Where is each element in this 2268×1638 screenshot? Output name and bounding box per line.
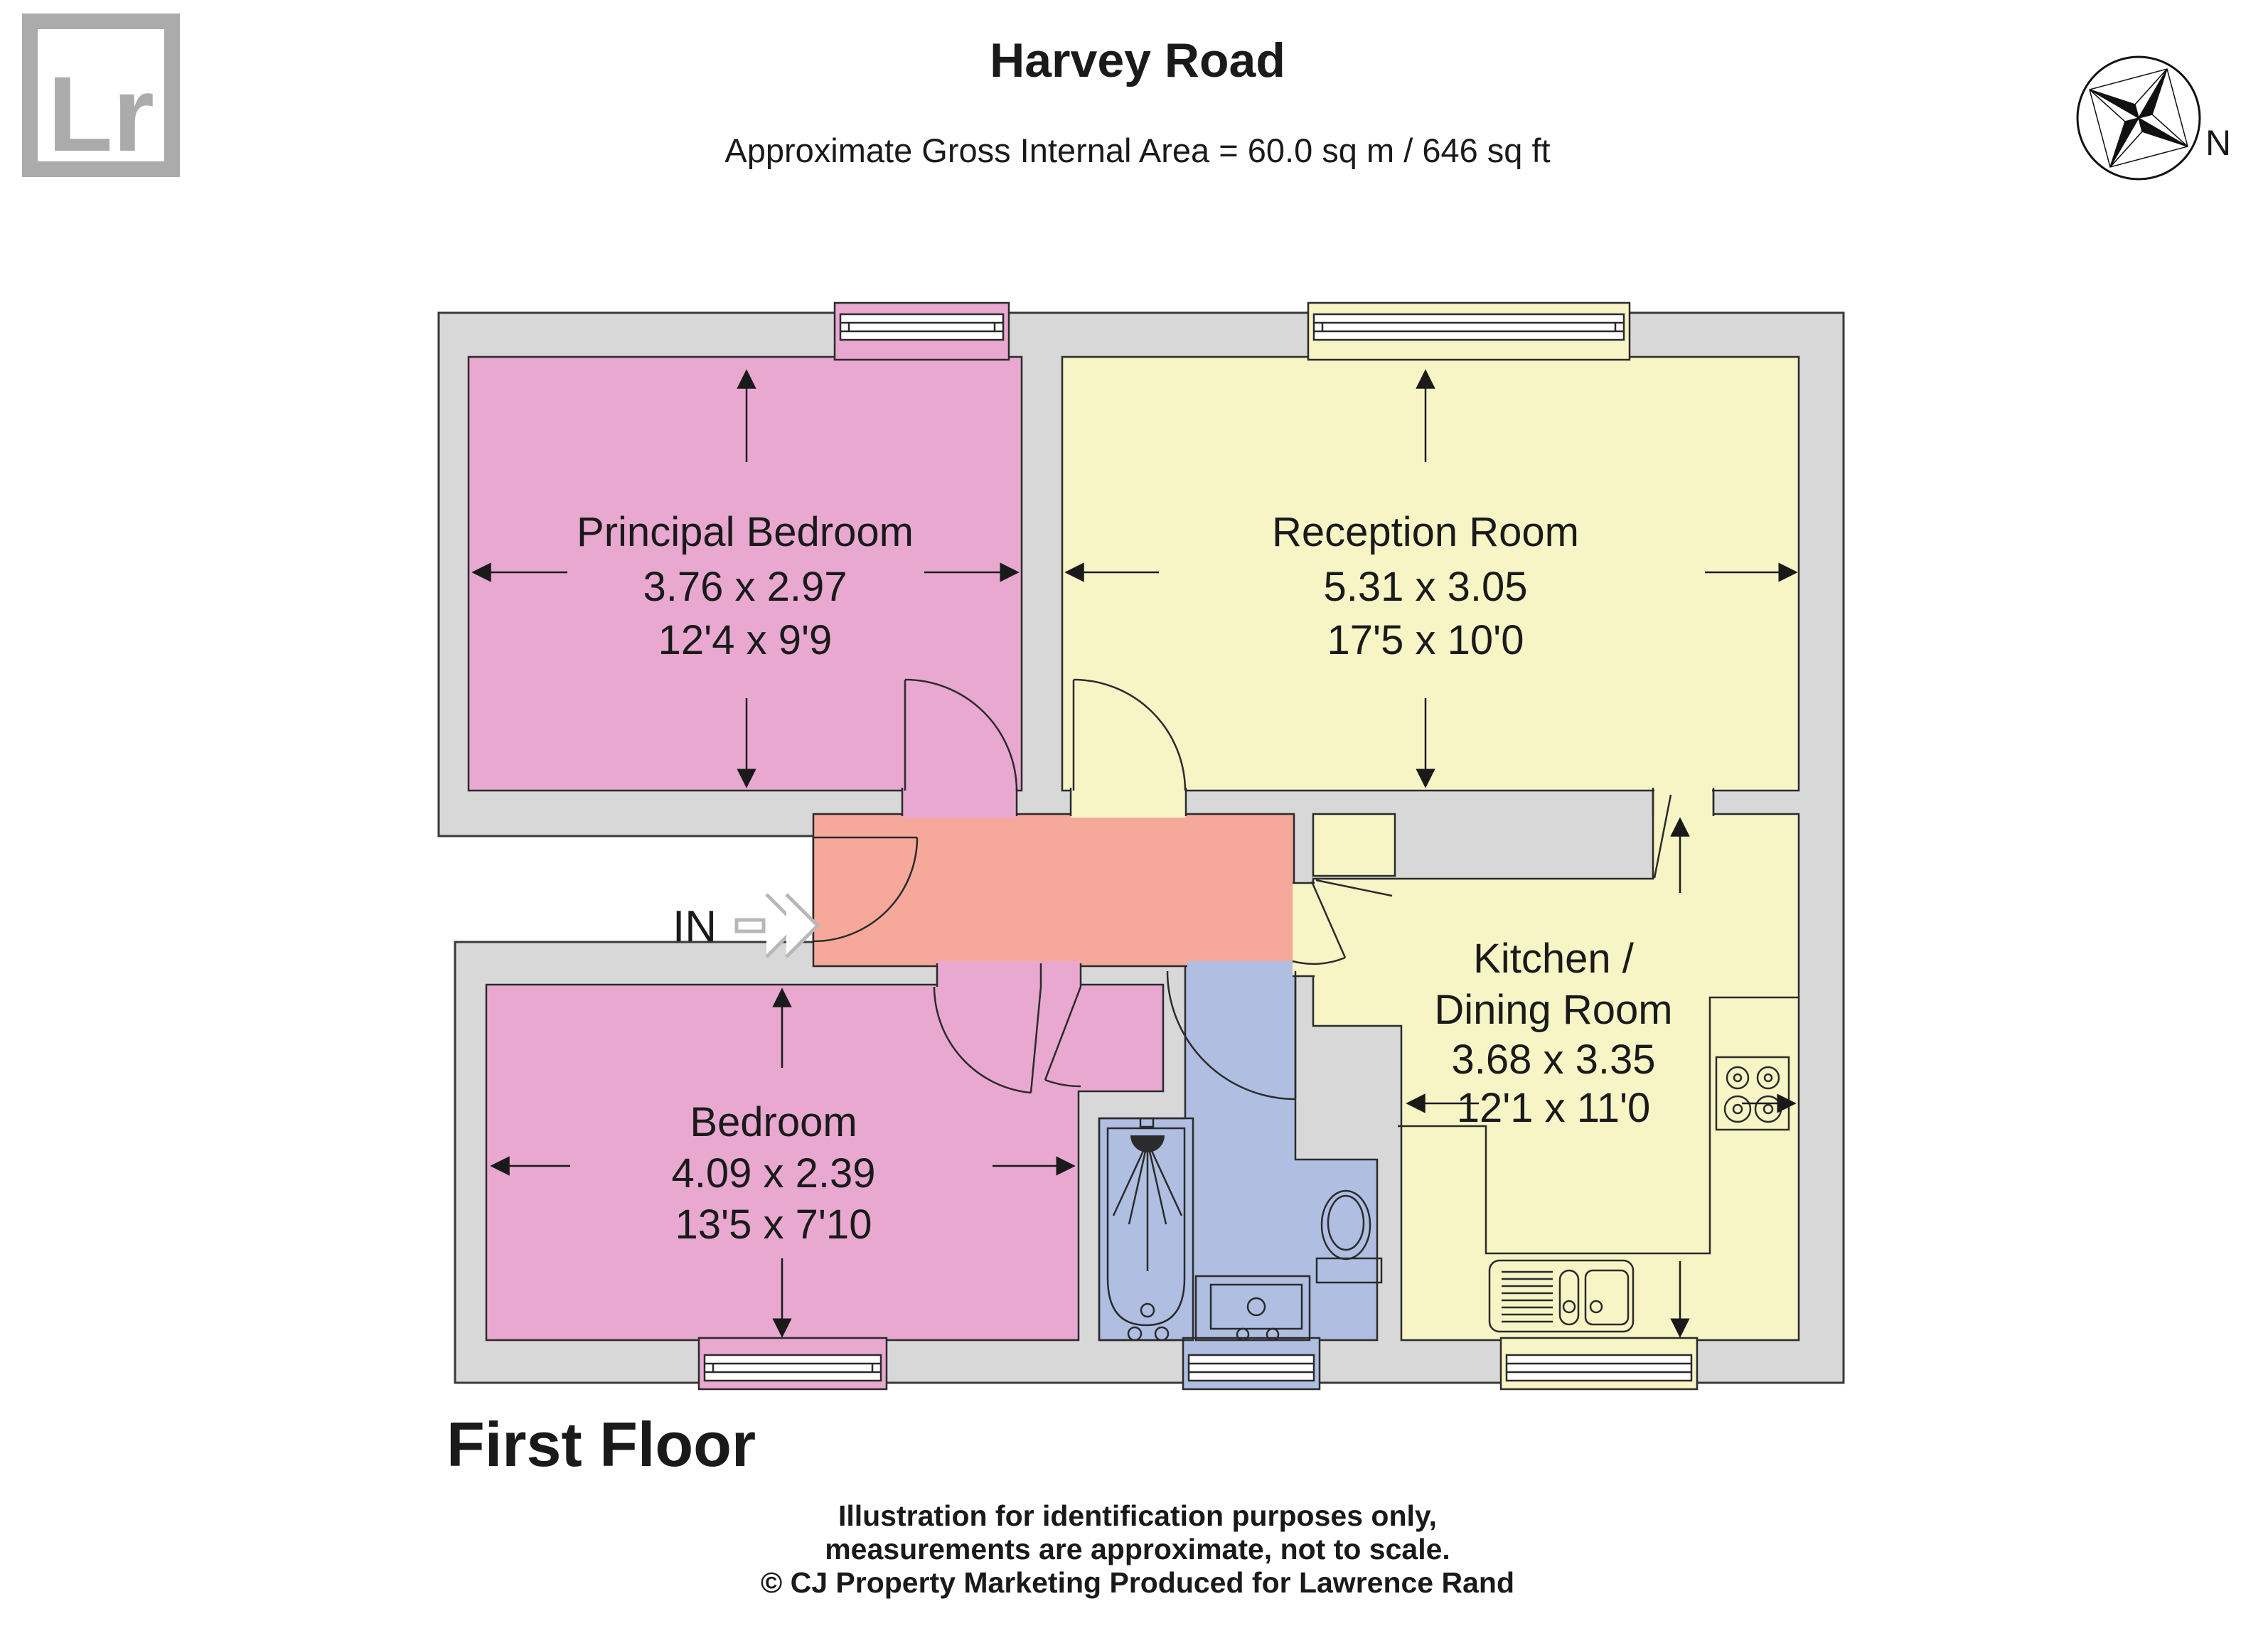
kitchen-cupboard	[1313, 814, 1395, 876]
window-kitchen	[1501, 1338, 1697, 1389]
window-reception	[1308, 303, 1630, 360]
disclaimer-line-2: measurements are approximate, not to sca…	[825, 1533, 1450, 1565]
label-principal-bedroom-name: Principal Bedroom	[577, 509, 914, 555]
label-kitchen-name-1: Kitchen /	[1473, 936, 1635, 982]
compass-icon: N	[2077, 57, 2231, 179]
doorway-bathroom	[1187, 961, 1294, 973]
floor-label: First Floor	[446, 1409, 756, 1479]
label-kitchen-name-2: Dining Room	[1434, 987, 1672, 1033]
label-bedroom-imperial: 13'5 x 7'10	[675, 1201, 872, 1248]
footer: First Floor Illustration for identificat…	[446, 1409, 1514, 1599]
doorway-principal-bedroom	[902, 786, 1017, 818]
disclaimer-line-1: Illustration for identification purposes…	[838, 1499, 1437, 1532]
label-kitchen-imperial: 12'1 x 11'0	[1457, 1085, 1651, 1131]
page-subtitle: Approximate Gross Internal Area = 60.0 s…	[724, 132, 1550, 169]
doorway-reception-kitchen	[1654, 786, 1712, 818]
doorway-bedroom	[937, 961, 1081, 988]
label-reception-imperial: 17'5 x 10'0	[1327, 617, 1524, 663]
logo: Lr	[30, 21, 172, 173]
window-principal-bedroom	[835, 303, 1009, 360]
window-bathroom	[1183, 1338, 1320, 1389]
logo-text: Lr	[48, 54, 154, 173]
label-kitchen-metric: 3.68 x 3.35	[1452, 1037, 1656, 1083]
disclaimer-line-3: © CJ Property Marketing Produced for Law…	[761, 1566, 1514, 1599]
label-bedroom-name: Bedroom	[690, 1099, 857, 1145]
compass-north-label: N	[2205, 123, 2231, 163]
header: Lr Harvey Road Approximate Gross Interna…	[30, 21, 2231, 179]
floor-plan: Principal Bedroom 3.76 x 2.97 12'4 x 9'9…	[439, 303, 1844, 1389]
label-reception-metric: 5.31 x 3.05	[1324, 564, 1528, 610]
label-principal-bedroom-metric: 3.76 x 2.97	[643, 564, 847, 610]
label-reception-name: Reception Room	[1272, 509, 1579, 555]
doorway-reception	[1071, 786, 1186, 818]
label-principal-bedroom-imperial: 12'4 x 9'9	[658, 617, 833, 663]
floorplan-canvas: Lr Harvey Road Approximate Gross Interna…	[0, 0, 2268, 1638]
entrance-label: IN	[673, 902, 717, 951]
label-bedroom-metric: 4.09 x 2.39	[672, 1150, 876, 1197]
page-title: Harvey Road	[990, 33, 1285, 87]
window-bedroom	[699, 1338, 887, 1389]
